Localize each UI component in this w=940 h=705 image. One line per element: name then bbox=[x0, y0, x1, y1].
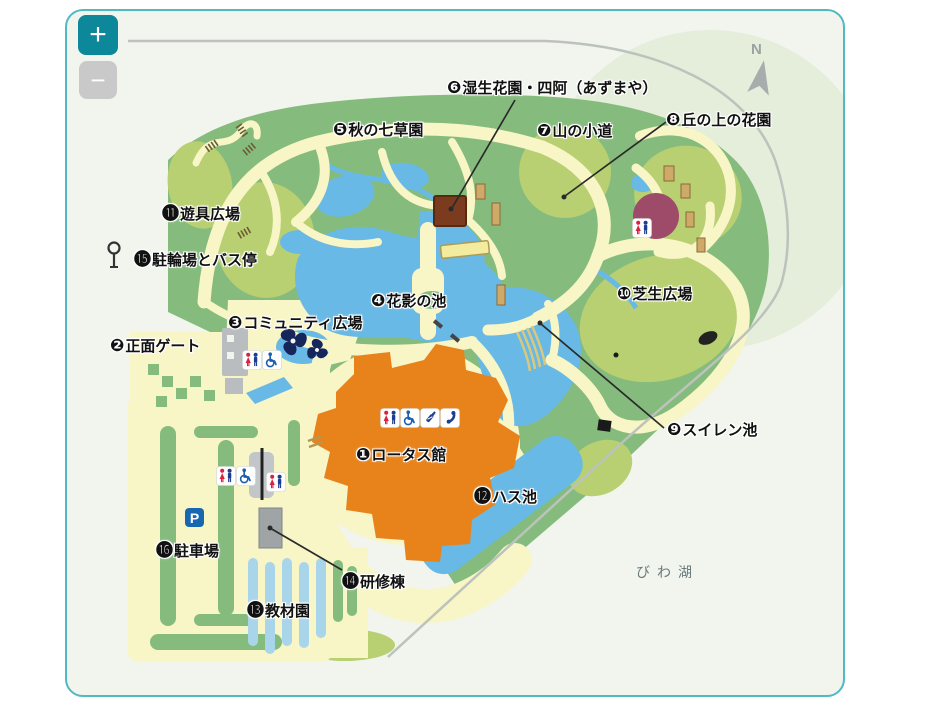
park-map[interactable]: P bbox=[0, 0, 940, 705]
bus-stop-icon bbox=[109, 243, 120, 268]
phone-icon bbox=[441, 409, 460, 428]
toilet-icon bbox=[243, 351, 262, 370]
zoom-in-button[interactable]: + bbox=[78, 15, 118, 55]
svg-text:P: P bbox=[190, 510, 199, 526]
toilet-icon bbox=[381, 409, 400, 428]
toilet-icon bbox=[267, 473, 286, 492]
page: P N びわ湖 ❶ロータス館❷正面ゲート❸コミュニティ広場❹花影の池❺秋の七草園… bbox=[0, 0, 940, 705]
parking-sign: P bbox=[185, 508, 204, 527]
wheelchair-icon bbox=[237, 467, 256, 486]
toilet-icon bbox=[217, 467, 236, 486]
wheelchair-icon bbox=[401, 409, 420, 428]
map-artwork: P bbox=[109, 30, 876, 662]
zoom-out-button[interactable]: − bbox=[79, 61, 117, 99]
wheelchair-icon bbox=[263, 351, 282, 370]
bottle-icon bbox=[421, 409, 440, 428]
pond-island bbox=[417, 291, 447, 309]
toilet-icon bbox=[633, 219, 652, 238]
